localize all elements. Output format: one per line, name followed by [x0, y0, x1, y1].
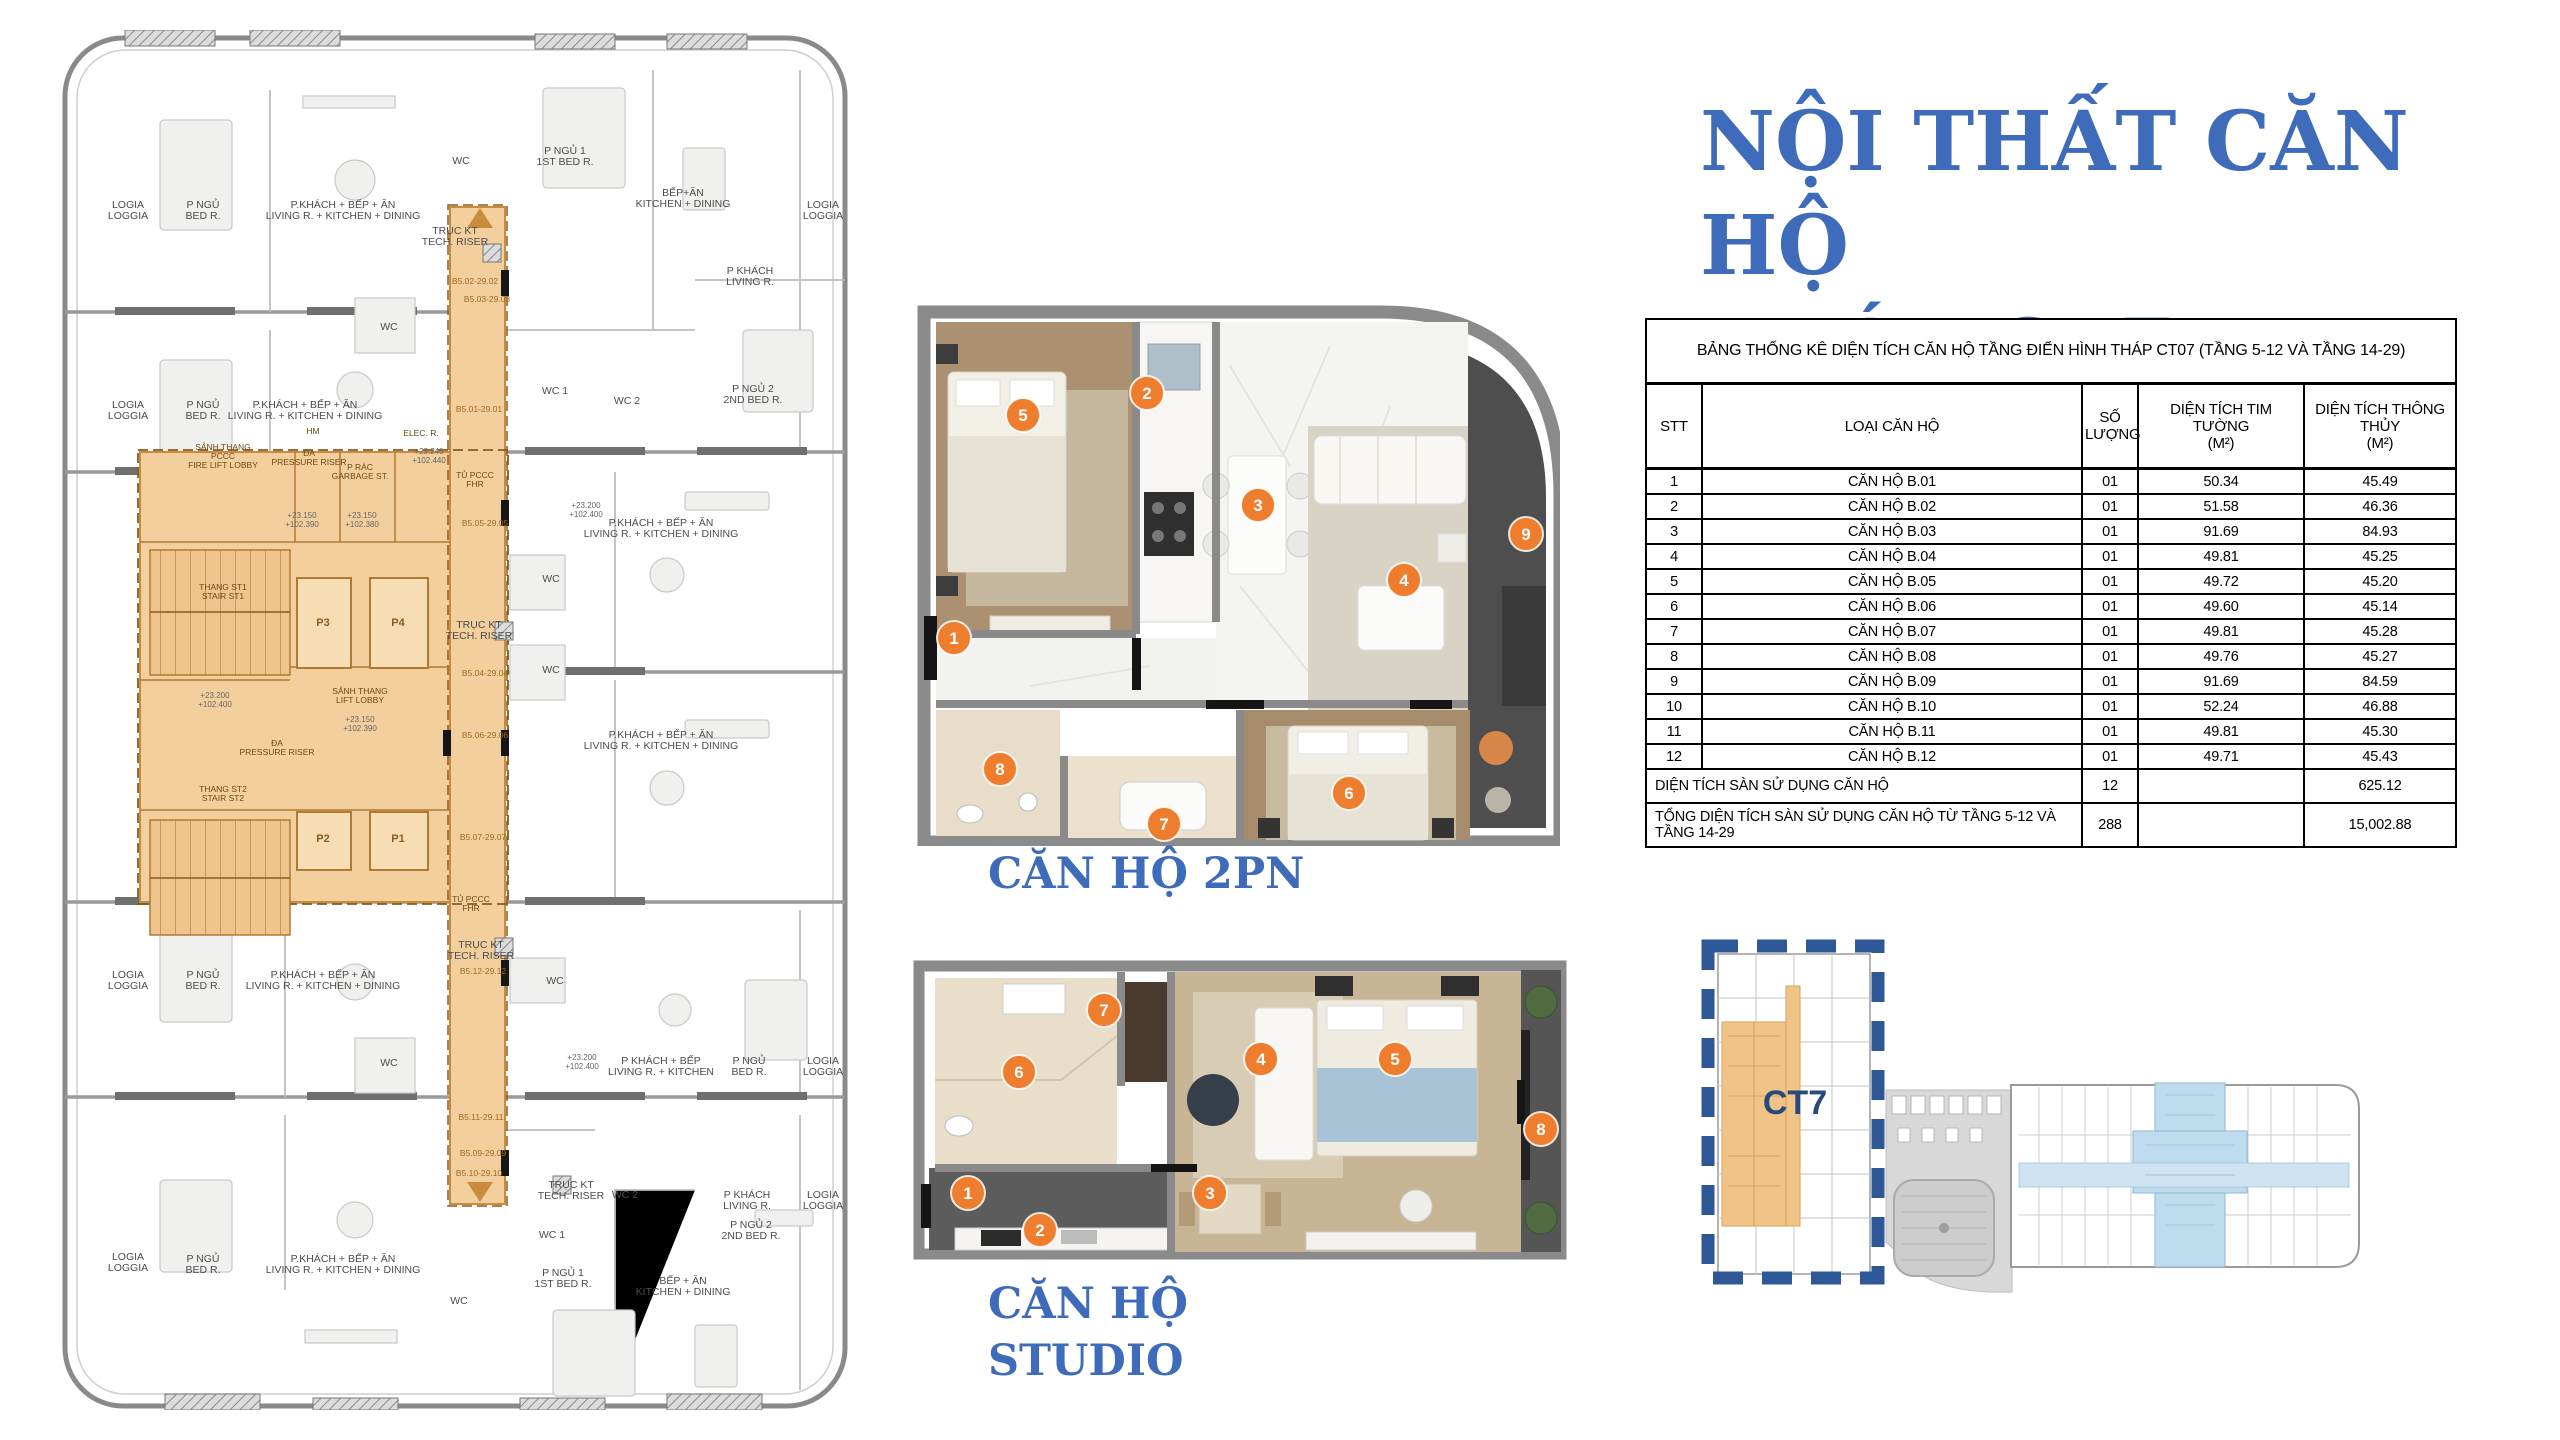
unit-marker-number: 7: [1099, 1001, 1108, 1020]
unit-marker-number: 2: [1035, 1221, 1044, 1240]
floorplan-label: B5.02-29.02: [452, 276, 499, 286]
table-row: 5CĂN HỘ B.050149.7245.20: [1646, 569, 2456, 594]
floorplan-label: WC: [450, 1295, 468, 1307]
floorplan-label: WC 2: [614, 395, 640, 407]
floorplan-label: WC: [542, 664, 560, 676]
unit-marker-number: 1: [963, 1184, 972, 1203]
floorplan-label: P1: [391, 833, 404, 845]
table-row: 1CĂN HỘ B.010150.3445.49: [1646, 469, 2456, 495]
column-header: SỐ LƯỢNG: [2082, 384, 2138, 469]
floorplan-label: B5.04-29.04: [462, 668, 509, 678]
floorplan-label: B5.11-29.11: [458, 1112, 503, 1122]
wardrobe-studio: [1123, 982, 1173, 1082]
table-row: 4CĂN HỘ B.040149.8145.25: [1646, 544, 2456, 569]
floorplan-label: +23.200+102.400: [198, 691, 232, 709]
floorplan-label: THANG ST2STAIR ST2: [199, 784, 247, 803]
floorplan-drawing: LOGIALOGGIAP NGỦBED R.P.KHÁCH + BẾP + ĂN…: [55, 30, 855, 1410]
floorplan-label: WC: [542, 573, 560, 585]
unit-marker-number: 9: [1521, 525, 1530, 544]
floorplan-label: WC: [452, 155, 470, 167]
minimap-neighbor-building: [2005, 1075, 2365, 1275]
unit-marker-number: 3: [1205, 1184, 1214, 1203]
table-row: 3CĂN HỘ B.030191.6984.93: [1646, 519, 2456, 544]
floorplan-label: WC 1: [539, 1229, 565, 1241]
apartment-studio-drawing: 12345678: [911, 940, 1568, 1262]
column-header: LOẠI CĂN HỘ: [1702, 384, 2082, 469]
table-row: 8CĂN HỘ B.080149.7645.27: [1646, 644, 2456, 669]
unit-marker-number: 6: [1344, 784, 1353, 803]
floorplan-label: WC: [546, 975, 564, 987]
table-caption-row: BẢNG THỐNG KÊ DIỆN TÍCH CĂN HỘ TẦNG ĐIỂN…: [1646, 319, 2456, 384]
apartment-studio-render: 12345678: [911, 940, 1568, 1262]
unit-marker-number: 2: [1142, 384, 1151, 403]
floorplan-label: +23.200+102.400: [565, 1053, 599, 1071]
floorplan-label: P NGỦBED R.: [185, 968, 220, 992]
table-row: 12CĂN HỘ B.120149.7145.43: [1646, 744, 2456, 769]
floorplan-label: P NGỦBED R.: [731, 1054, 766, 1078]
table-row: 9CĂN HỘ B.090191.6984.59: [1646, 669, 2456, 694]
floorplan-label: P NGỦ 22ND BED R.: [724, 382, 783, 406]
floorplan-label: +23.240+102.440: [412, 447, 446, 465]
minimap-connector: [1878, 1080, 2018, 1295]
table-total-row: TỔNG DIỆN TÍCH SÀN SỬ DỤNG CĂN HỘ TỪ TẦN…: [1646, 803, 2456, 847]
floorplan-label: LOGIALOGGIA: [803, 1055, 843, 1078]
floorplan-label: LOGIALOGGIA: [803, 199, 843, 222]
apartment-2pn-drawing: 123456789: [910, 286, 1560, 846]
floorplan-label: B5.06-29.06: [462, 730, 509, 740]
floorplan-label: P3: [316, 617, 329, 629]
floorplan-label: P NGỦ 22ND BED R.: [722, 1218, 781, 1242]
table-total-row: DIỆN TÍCH SÀN SỬ DỤNG CĂN HỘ12625.12: [1646, 769, 2456, 803]
area-statistics-table: BẢNG THỐNG KÊ DIỆN TÍCH CĂN HỘ TẦNG ĐIỂN…: [1645, 318, 2457, 848]
floorplan-label: ELEC. R.: [403, 428, 438, 438]
unit-marker-number: 4: [1399, 571, 1409, 590]
floorplan-label: +23.200+102.400: [569, 501, 603, 519]
unit-marker-number: 4: [1256, 1050, 1266, 1069]
floorplan-label: P KHÁCHLIVING R.: [726, 264, 774, 288]
unit-marker-number: 3: [1253, 496, 1262, 515]
floorplan-label: P NGỦ 11ST BED R.: [537, 144, 594, 168]
floorplan-label: SẢNH THANGLIFT LOBBY: [332, 685, 388, 705]
floorplan-label: P NGỦBED R.: [185, 1252, 220, 1276]
label-studio-line2: STUDIO: [988, 1333, 1188, 1390]
floorplan-label: P KHÁCHLIVING R.: [723, 1188, 771, 1212]
page: LOGIALOGGIAP NGỦBED R.P.KHÁCH + BẾP + ĂN…: [0, 0, 2560, 1440]
table-header-row: STTLOẠI CĂN HỘSỐ LƯỢNGDIỆN TÍCH TIM TƯỜN…: [1646, 384, 2456, 469]
floorplan-label: LOGIALOGGIA: [108, 969, 148, 992]
floorplan-label: LOGIALOGGIA: [108, 399, 148, 422]
tower-floorplan: LOGIALOGGIAP NGỦBED R.P.KHÁCH + BẾP + ĂN…: [55, 30, 855, 1410]
table-row: 10CĂN HỘ B.100152.2446.88: [1646, 694, 2456, 719]
floorplan-label: B5.10-29.10: [456, 1168, 503, 1178]
floorplan-label: B5.07-29.07: [460, 832, 507, 842]
label-studio-line1: CĂN HỘ: [988, 1276, 1188, 1333]
floorplan-label: B5.05-29.05: [462, 518, 509, 528]
table-row: 11CĂN HỘ B.110149.8145.30: [1646, 719, 2456, 744]
title-line1: NỘI THẤT CĂN: [1700, 90, 2410, 194]
floorplan-label: WC: [380, 321, 398, 333]
floorplan-label: +23.150+102.380: [345, 511, 379, 529]
floorplan-label: B5.01-29.01: [456, 404, 503, 414]
label-apartment-studio: CĂN HỘ STUDIO: [988, 1276, 1188, 1390]
floorplan-label: B5.12-29.12: [460, 966, 507, 976]
floorplan-label: HM: [306, 426, 319, 436]
table-row: 7CĂN HỘ B.070149.8145.28: [1646, 619, 2456, 644]
column-header: DIỆN TÍCH THÔNG THỦY (M²): [2304, 384, 2456, 469]
minimap-tower-ct7: CT7: [1698, 936, 1888, 1288]
floorplan-label: WC 2: [612, 1189, 638, 1201]
floorplan-label: LOGIALOGGIA: [803, 1189, 843, 1212]
apartment-2pn-render: 123456789: [910, 286, 1560, 846]
column-header: DIỆN TÍCH TIM TƯỜNG (M²): [2138, 384, 2304, 469]
floorplan-label: B5.03-29.03: [464, 294, 511, 304]
unit-marker-number: 5: [1390, 1050, 1399, 1069]
floorplan-label: B5.09-29.09: [460, 1148, 507, 1158]
unit-marker-number: 6: [1014, 1063, 1023, 1082]
floorplan-label: P2: [316, 833, 329, 845]
unit-marker-number: 1: [949, 629, 958, 648]
table-caption: BẢNG THỐNG KÊ DIỆN TÍCH CĂN HỘ TẦNG ĐIỂN…: [1646, 319, 2456, 384]
floorplan-label: LOGIALOGGIA: [108, 199, 148, 222]
table-row: 2CĂN HỘ B.020151.5846.36: [1646, 494, 2456, 519]
unit-marker-number: 8: [995, 760, 1004, 779]
floorplan-label: THANG ST1STAIR ST1: [199, 582, 247, 601]
floorplan-label: P4: [391, 617, 405, 629]
floorplan-label: LOGIALOGGIA: [108, 1251, 148, 1274]
floorplan-label: WC: [380, 1057, 398, 1069]
floorplan-label: P NGỦ 11ST BED R.: [535, 1266, 592, 1290]
unit-marker-number: 7: [1159, 815, 1168, 834]
unit-marker-number: 5: [1018, 406, 1027, 425]
label-apartment-2pn: CĂN HỘ 2PN: [988, 846, 1304, 903]
column-header: STT: [1646, 384, 1702, 469]
floorplan-label: P NGỦBED R.: [185, 398, 220, 422]
floorplan-label: P KHÁCH + BẾPLIVING R. + KITCHEN: [608, 1054, 714, 1078]
floorplan-label: +23.150+102.390: [343, 715, 377, 733]
minimap-ct7-label: CT7: [1763, 1084, 1827, 1122]
title-line2: HỘ: [1700, 194, 2410, 298]
floorplan-label: P NGỦBED R.: [185, 198, 220, 222]
table-row: 6CĂN HỘ B.060149.6045.14: [1646, 594, 2456, 619]
floorplan-label: WC 1: [542, 385, 568, 397]
floorplan-label: +23.150+102.390: [285, 511, 319, 529]
unit-marker-number: 8: [1536, 1120, 1545, 1139]
